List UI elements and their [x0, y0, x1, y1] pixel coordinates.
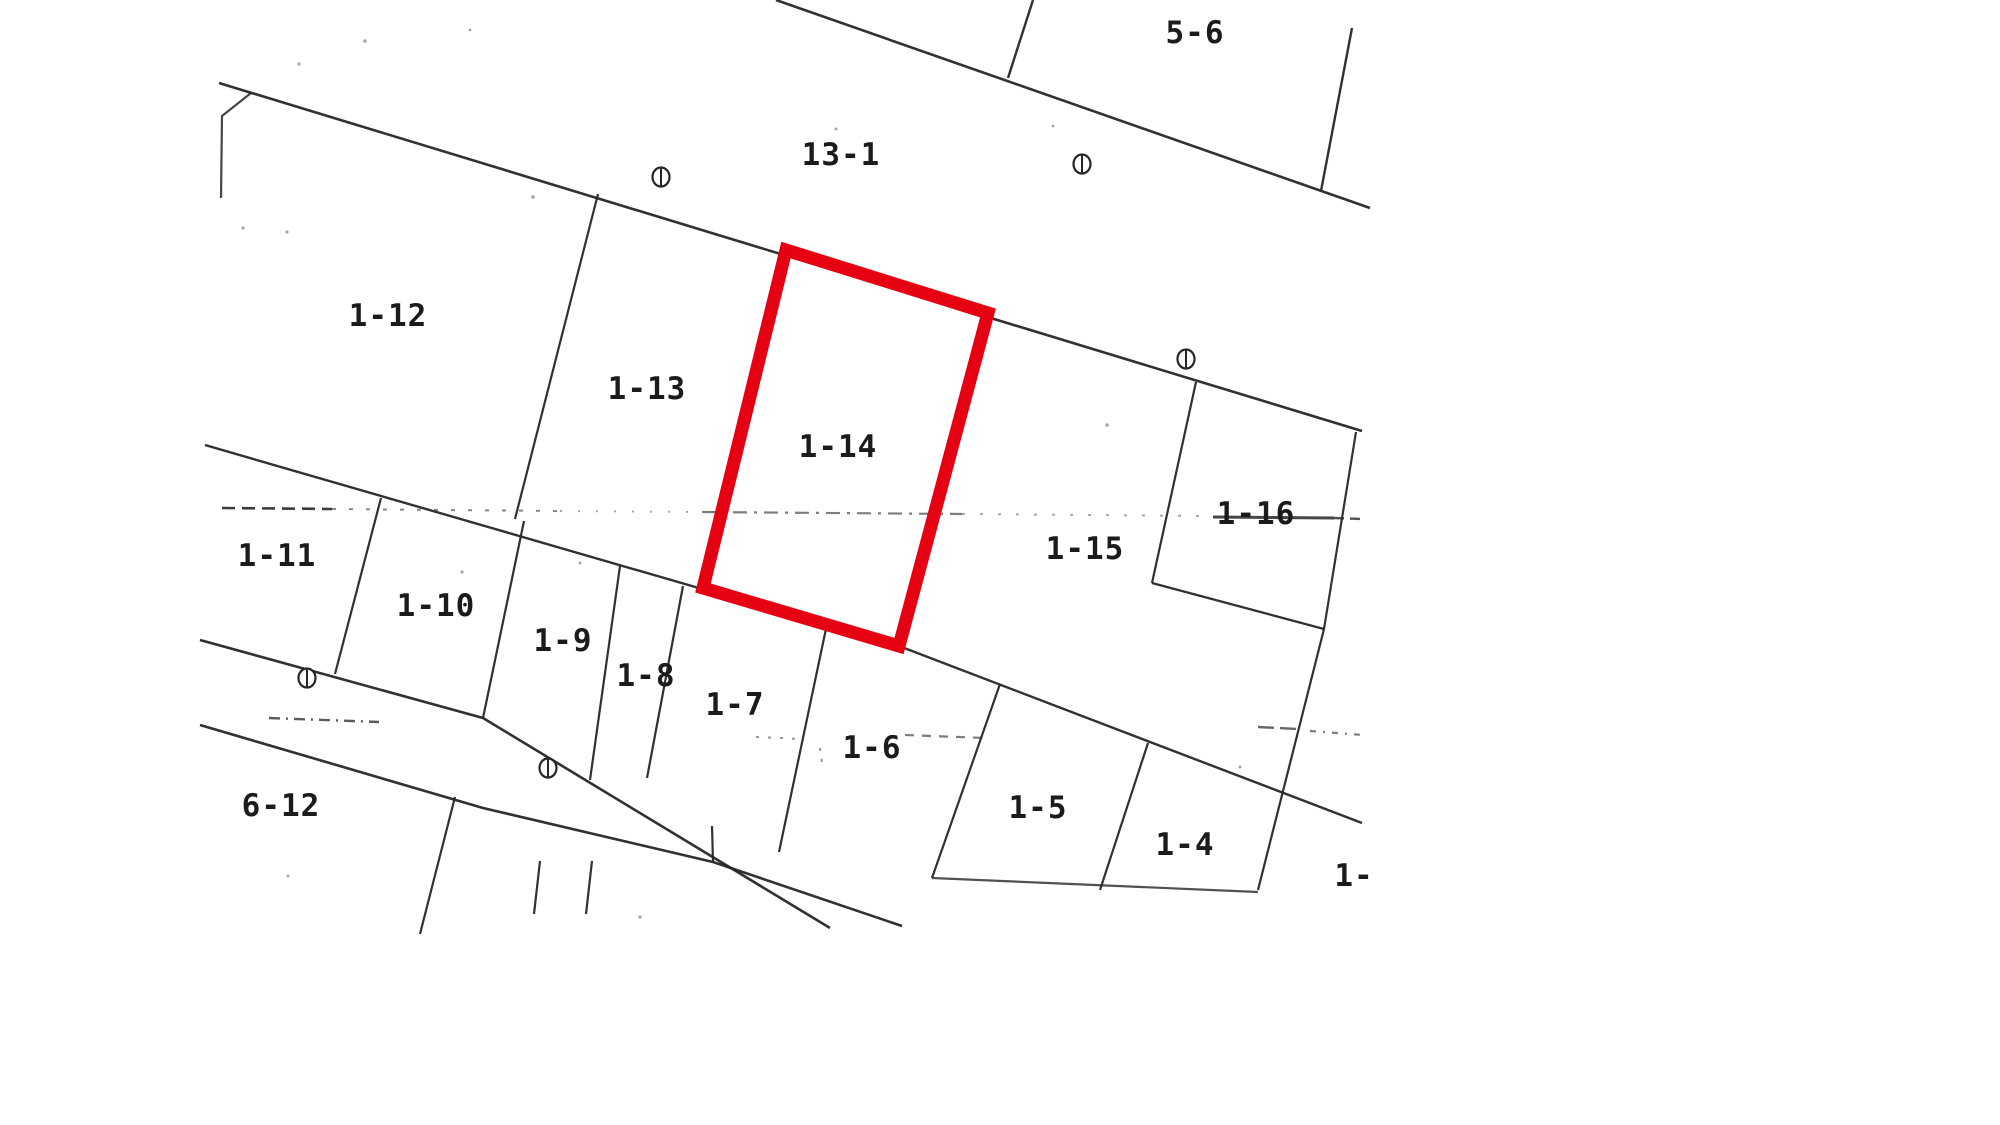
- scan-speck: [638, 915, 641, 918]
- lower-dashline-6: [1310, 731, 1363, 735]
- boundary-1-9-1-8: [590, 566, 620, 780]
- scan-speck: [460, 570, 463, 573]
- scan-speck: [241, 226, 244, 229]
- scan-speck: [1239, 766, 1242, 769]
- boundary-1-6-1-5: [932, 684, 1000, 878]
- small-boundary-a: [534, 861, 540, 914]
- lower-dashline-3: [820, 748, 822, 762]
- parcel-label-6-12: 6-12: [242, 788, 321, 824]
- parcel-label-1-13: 1-13: [608, 371, 687, 407]
- parcel-label-1-7: 1-7: [706, 687, 765, 723]
- parcel-label-1-4: 1-4: [1156, 827, 1215, 863]
- parcel-label-1-16: 1-16: [1217, 496, 1296, 532]
- parcel-label-1-9: 1-9: [534, 623, 593, 659]
- center-dashline-4: [702, 512, 962, 514]
- boundary-1-11-1-10: [335, 498, 381, 674]
- south-road-lower-edge: [200, 725, 902, 926]
- top-edge-vertical-boundary: [1008, 0, 1033, 78]
- center-dashline-2: [332, 509, 560, 511]
- lower-dashline-4: [905, 735, 985, 738]
- parcel-label-1-10: 1-10: [397, 588, 476, 624]
- center-dashline-5: [962, 514, 1213, 516]
- parcel-1-5-1-4-south-edge: [932, 878, 1258, 892]
- scan-speck: [579, 562, 582, 565]
- scan-speck: [835, 128, 838, 131]
- center-dashline-1: [222, 508, 332, 509]
- boundary-1-16-west: [1152, 382, 1196, 583]
- parcel-label-1-14: 1-14: [799, 429, 878, 465]
- scan-speck: [363, 39, 367, 43]
- parcel-label-5-6: 5-6: [1166, 15, 1225, 51]
- boundary-1-16-south: [1152, 583, 1324, 629]
- lower-dashline-5: [1258, 727, 1298, 729]
- center-dashline-7: [1334, 518, 1362, 519]
- cadastral-map-svg: 5-613-11-121-131-141-161-151-111-101-91-…: [0, 0, 2000, 1125]
- parcel-label-1-12: 1-12: [349, 298, 428, 334]
- northwest-corner-notch: [221, 93, 251, 198]
- boundary-1-10-1-9: [483, 521, 524, 718]
- center-dashline-3: [560, 511, 702, 512]
- lower-dashline-2: [756, 737, 802, 739]
- parcel-label-1-6: 1-6: [843, 730, 902, 766]
- boundary-6-12-east: [420, 797, 455, 934]
- parcel-5-6-east-boundary: [1321, 28, 1352, 191]
- boundary-1-7-1-6: [779, 624, 827, 852]
- parcel-label-1-: 1-: [1334, 858, 1373, 894]
- parcel-label-1-5: 1-5: [1009, 790, 1068, 826]
- scan-speck: [469, 29, 472, 32]
- south-road-upper-edge: [200, 640, 830, 928]
- scan-speck: [285, 230, 288, 233]
- parcel-label-1-11: 1-11: [238, 538, 317, 574]
- north-road-upper-edge: [776, 0, 1370, 208]
- scan-speck: [531, 195, 535, 199]
- parcel-label-1-8: 1-8: [617, 658, 676, 694]
- boundary-1-12-1-13: [515, 194, 598, 519]
- scan-speck: [297, 62, 300, 65]
- parcel-label-13-1: 13-1: [802, 137, 881, 173]
- small-boundary-c: [712, 826, 713, 862]
- parcel-label-1-15: 1-15: [1046, 531, 1125, 567]
- lower-dashline-1: [269, 718, 379, 722]
- cadastral-map: 5-613-11-121-131-141-161-151-111-101-91-…: [0, 0, 2000, 1125]
- small-boundary-b: [586, 861, 592, 914]
- scan-speck: [287, 875, 290, 878]
- scan-speck: [1105, 423, 1109, 427]
- mid-block-south-boundary: [205, 445, 1362, 823]
- scan-speck: [1052, 125, 1055, 128]
- boundary-1-5-1-4: [1100, 743, 1148, 890]
